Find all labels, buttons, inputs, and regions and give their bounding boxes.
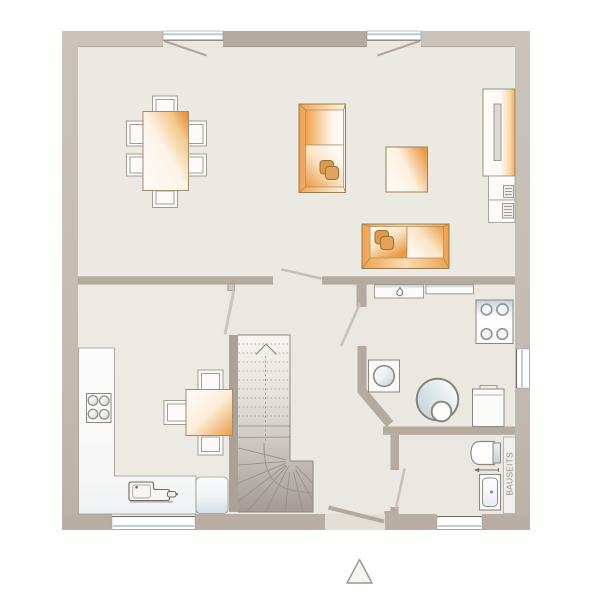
svg-text:BAUSEITS: BAUSEITS (505, 452, 515, 495)
